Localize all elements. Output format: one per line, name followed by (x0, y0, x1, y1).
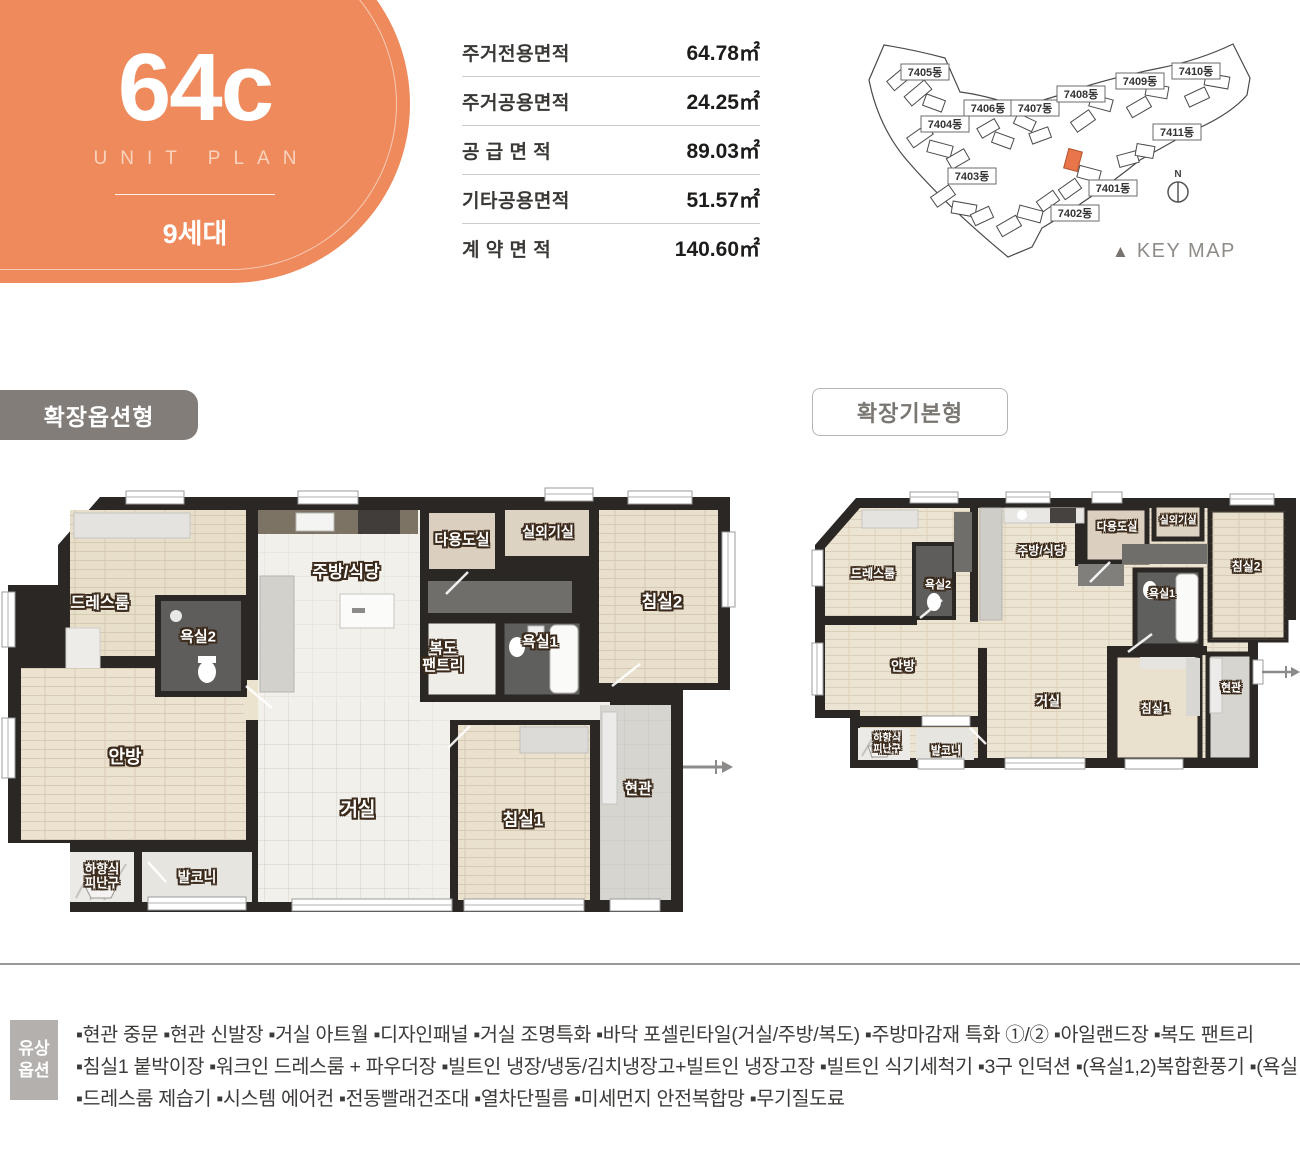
area-label: 공 급 면 적 (462, 137, 551, 164)
room-label-bath1: 욕실1 (522, 635, 558, 652)
svg-text:7405동: 7405동 (908, 66, 943, 79)
room-label-bath2: 욕실2 (180, 630, 216, 647)
plan-title-extended-basic: 확장기본형 (812, 388, 1008, 436)
keymap-caption-text: KEY MAP (1137, 240, 1236, 262)
svg-text:7404동: 7404동 (928, 118, 963, 131)
room-label-master: 안방 (891, 660, 915, 675)
room-label-utility: 다용도실 (434, 533, 489, 550)
room-label-escape-hatch: 하향식 피난구 (85, 862, 120, 890)
floor-plan-extended-basic: 드레스룸 욕실2 주방/식당 다용도실 실외기실 침실2 욕실1 안방 거실 침… (810, 488, 1300, 778)
room-label-kitchen: 주방/식당 (312, 562, 379, 581)
room-label-living: 거실 (341, 799, 376, 820)
room-label-balcony: 발코니 (931, 745, 961, 757)
room-label-entrance: 현관 (624, 782, 652, 799)
triangle-icon: ▲ (1112, 242, 1129, 261)
entrance-arrow-icon (1262, 666, 1300, 678)
area-value: 24.25㎡ (686, 86, 760, 116)
unit-divider (115, 194, 275, 195)
north-compass-icon: N (1168, 169, 1188, 202)
entrance-arrow-icon (683, 760, 733, 774)
area-value: 51.57㎡ (686, 184, 760, 214)
svg-text:7406동: 7406동 (971, 102, 1006, 115)
option-line: ▪침실1 붙박이장 ▪워크인 드레스룸 + 파우더장 ▪빌트인 냉장/냉동/김치… (76, 1051, 1298, 1083)
room-label-master: 안방 (108, 747, 141, 767)
area-value: 64.78㎡ (686, 37, 760, 67)
table-row: 공 급 면 적 89.03㎡ (462, 126, 760, 175)
area-value: 89.03㎡ (686, 135, 760, 165)
room-label-escape-hatch: 하향식 피난구 (873, 733, 901, 755)
room-label-dressroom: 드레스룸 (851, 567, 895, 580)
table-row: 기타공용면적 51.57㎡ (462, 175, 760, 224)
room-label-ac-room: 실외기실 (522, 525, 574, 541)
room-label-bedroom2: 침실2 (642, 592, 683, 611)
svg-text:7410동: 7410동 (1179, 65, 1214, 78)
room-label-entrance: 현관 (1221, 682, 1241, 694)
unit-subtitle: UNIT PLAN (55, 148, 335, 170)
room-label-bedroom2: 침실2 (1232, 560, 1261, 573)
svg-text:7409동: 7409동 (1123, 75, 1158, 88)
room-label-bedroom1: 침실1 (1141, 702, 1170, 715)
keymap-caption: ▲KEY MAP (1112, 240, 1236, 263)
room-label-living: 거실 (1036, 695, 1060, 710)
floor-plan-extended-option: 드레스룸 욕실2 주방/식당 다용도실 실외기실 침실2 복도 팬트리 욕실1 … (0, 480, 740, 940)
table-row: 계 약 면 적 140.60㎡ (462, 224, 760, 272)
key-map: 7405동 7406동 7407동 7408동 7409동 7410동 7404… (860, 25, 1290, 270)
svg-text:7411동: 7411동 (1160, 126, 1194, 139)
svg-text:7402동: 7402동 (1058, 207, 1093, 220)
svg-text:7401동: 7401동 (1096, 182, 1131, 195)
room-label-dressroom: 드레스룸 (71, 595, 130, 613)
paid-options-badge: 유상 옵션 (10, 1020, 58, 1100)
plan-title-extended-option: 확장옵션형 (0, 390, 198, 440)
room-label-bedroom1: 침실1 (503, 810, 544, 829)
svg-text:7407동: 7407동 (1018, 102, 1053, 115)
room-label-utility: 다용도실 (1097, 521, 1137, 533)
area-label: 계 약 면 적 (462, 235, 551, 262)
section-divider (0, 963, 1300, 965)
area-table: 주거전용면적 64.78㎡ 주거공용면적 24.25㎡ 공 급 면 적 89.0… (462, 28, 760, 272)
svg-text:7403동: 7403동 (955, 170, 990, 183)
area-label: 주거전용면적 (462, 39, 570, 66)
paid-options-list: ▪현관 중문 ▪현관 신발장 ▪거실 아트월 ▪디자인패널 ▪거실 조명특화 ▪… (76, 1019, 1298, 1115)
svg-text:7408동: 7408동 (1064, 88, 1099, 101)
unit-code: 64c (55, 40, 335, 136)
unit-plan-page: 64c UNIT PLAN 9세대 주거전용면적 64.78㎡ 주거공용면적 2… (0, 0, 1300, 1151)
table-row: 주거전용면적 64.78㎡ (462, 28, 760, 77)
unit-households: 9세대 (55, 212, 335, 251)
room-label-kitchen: 주방/식당 (1017, 544, 1065, 557)
room-label-balcony: 발코니 (178, 870, 217, 886)
room-label-pantry: 복도 팬트리 (422, 641, 463, 675)
area-label: 주거공용면적 (462, 88, 570, 115)
option-line: ▪현관 중문 ▪현관 신발장 ▪거실 아트월 ▪디자인패널 ▪거실 조명특화 ▪… (76, 1019, 1298, 1051)
unit-badge-content: 64c UNIT PLAN 9세대 (55, 40, 335, 251)
pantry-and-bathroom-1 (426, 579, 582, 697)
room-label-bath1: 욕실1 (1149, 588, 1175, 600)
svg-text:N: N (1174, 169, 1181, 180)
option-line: ▪드레스룸 제습기 ▪시스템 에어컨 ▪전동빨래건조대 ▪열차단필름 ▪미세먼지… (76, 1083, 1298, 1115)
area-value: 140.60㎡ (675, 233, 760, 263)
area-label: 기타공용면적 (462, 186, 570, 213)
room-label-bath2: 욕실2 (925, 579, 951, 591)
table-row: 주거공용면적 24.25㎡ (462, 77, 760, 126)
room-label-ac-room: 실외기실 (1160, 515, 1197, 526)
